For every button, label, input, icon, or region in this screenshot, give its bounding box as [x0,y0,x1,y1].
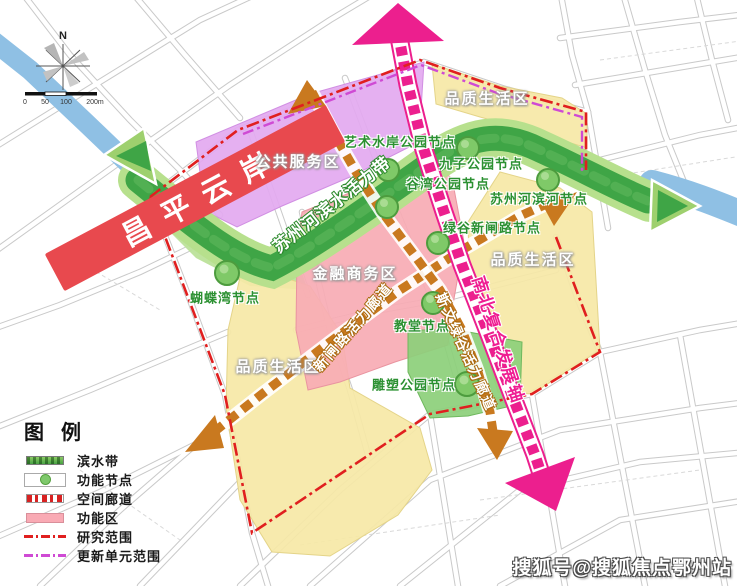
legend-item-renewal-unit-scope: 更新单元范围 [24,548,161,563]
waterfront-band-swatch [24,454,66,468]
legend-label: 滨水带 [77,451,119,470]
legend-item-research-scope: 研究范围 [24,529,161,544]
legend-label: 功能区 [77,508,119,527]
node-label-guwan-park: 谷湾公园节点 [406,178,490,191]
legend-item-function-node: 功能节点 [24,472,161,487]
corridor-arrow-south [477,428,513,460]
scale-bar [25,92,97,96]
legend-label: 研究范围 [77,527,133,546]
scale-tick-0: 0 [23,99,27,106]
legend: 图 例 滨水带 功能节点 空间廊道 功能区 研究范围 更新单元范围 [24,416,161,563]
legend-label: 空间廊道 [77,489,133,508]
watermark-sohu: 搜狐号@搜狐焦点鄂州站 [512,553,732,580]
axis-arrow-north [352,3,444,45]
renewal-unit-swatch [24,549,66,563]
legend-item-function-zone: 功能区 [24,510,161,525]
legend-label: 功能节点 [77,470,133,489]
zone-label-quality-life-right: 品质生活区 [490,253,575,268]
legend-title: 图 例 [24,416,161,445]
zone-label-public-service: 公共服务区 [255,155,340,170]
node-label-church: 教堂节点 [394,320,450,333]
node-label-jiuzi-park: 九子公园节点 [439,158,523,171]
node-label-butterfly-bay: 蝴蝶湾节点 [190,292,260,305]
node-label-art-waterfront: 艺术水岸公园节点 [344,136,456,149]
scale-tick-200m: 200m [86,99,104,106]
function-zone-swatch [24,511,66,525]
scale-tick-100: 100 [60,99,72,106]
scale-tick-50: 50 [41,99,49,106]
node-label-suzhou-riverside: 苏州河滨河节点 [490,193,588,206]
spatial-corridor-swatch [24,492,66,506]
function-node-swatch [24,473,66,487]
legend-item-spatial-corridor: 空间廊道 [24,491,161,506]
zone-label-quality-life-top: 品质生活区 [444,92,529,107]
node-butterfly-bay [215,261,239,285]
node-label-sculpture-park: 雕塑公园节点 [372,379,456,392]
legend-item-waterfront-band: 滨水带 [24,453,161,468]
node-guwan-park [376,196,398,218]
planning-map: 昌平云岸 公共服务区 品质生活区 品质生活区 品质生活区 金融商务区 艺术水岸公… [0,0,737,586]
zone-label-finance-business: 金融商务区 [312,267,397,282]
compass-north-label: N [59,30,67,42]
node-label-lvgu-xinzha: 绿谷新闸路节点 [443,222,541,235]
legend-label: 更新单元范围 [77,546,161,565]
research-scope-swatch [24,530,66,544]
zone-label-quality-life-bottom: 品质生活区 [235,360,320,375]
node-suzhou-riverside [537,169,559,191]
